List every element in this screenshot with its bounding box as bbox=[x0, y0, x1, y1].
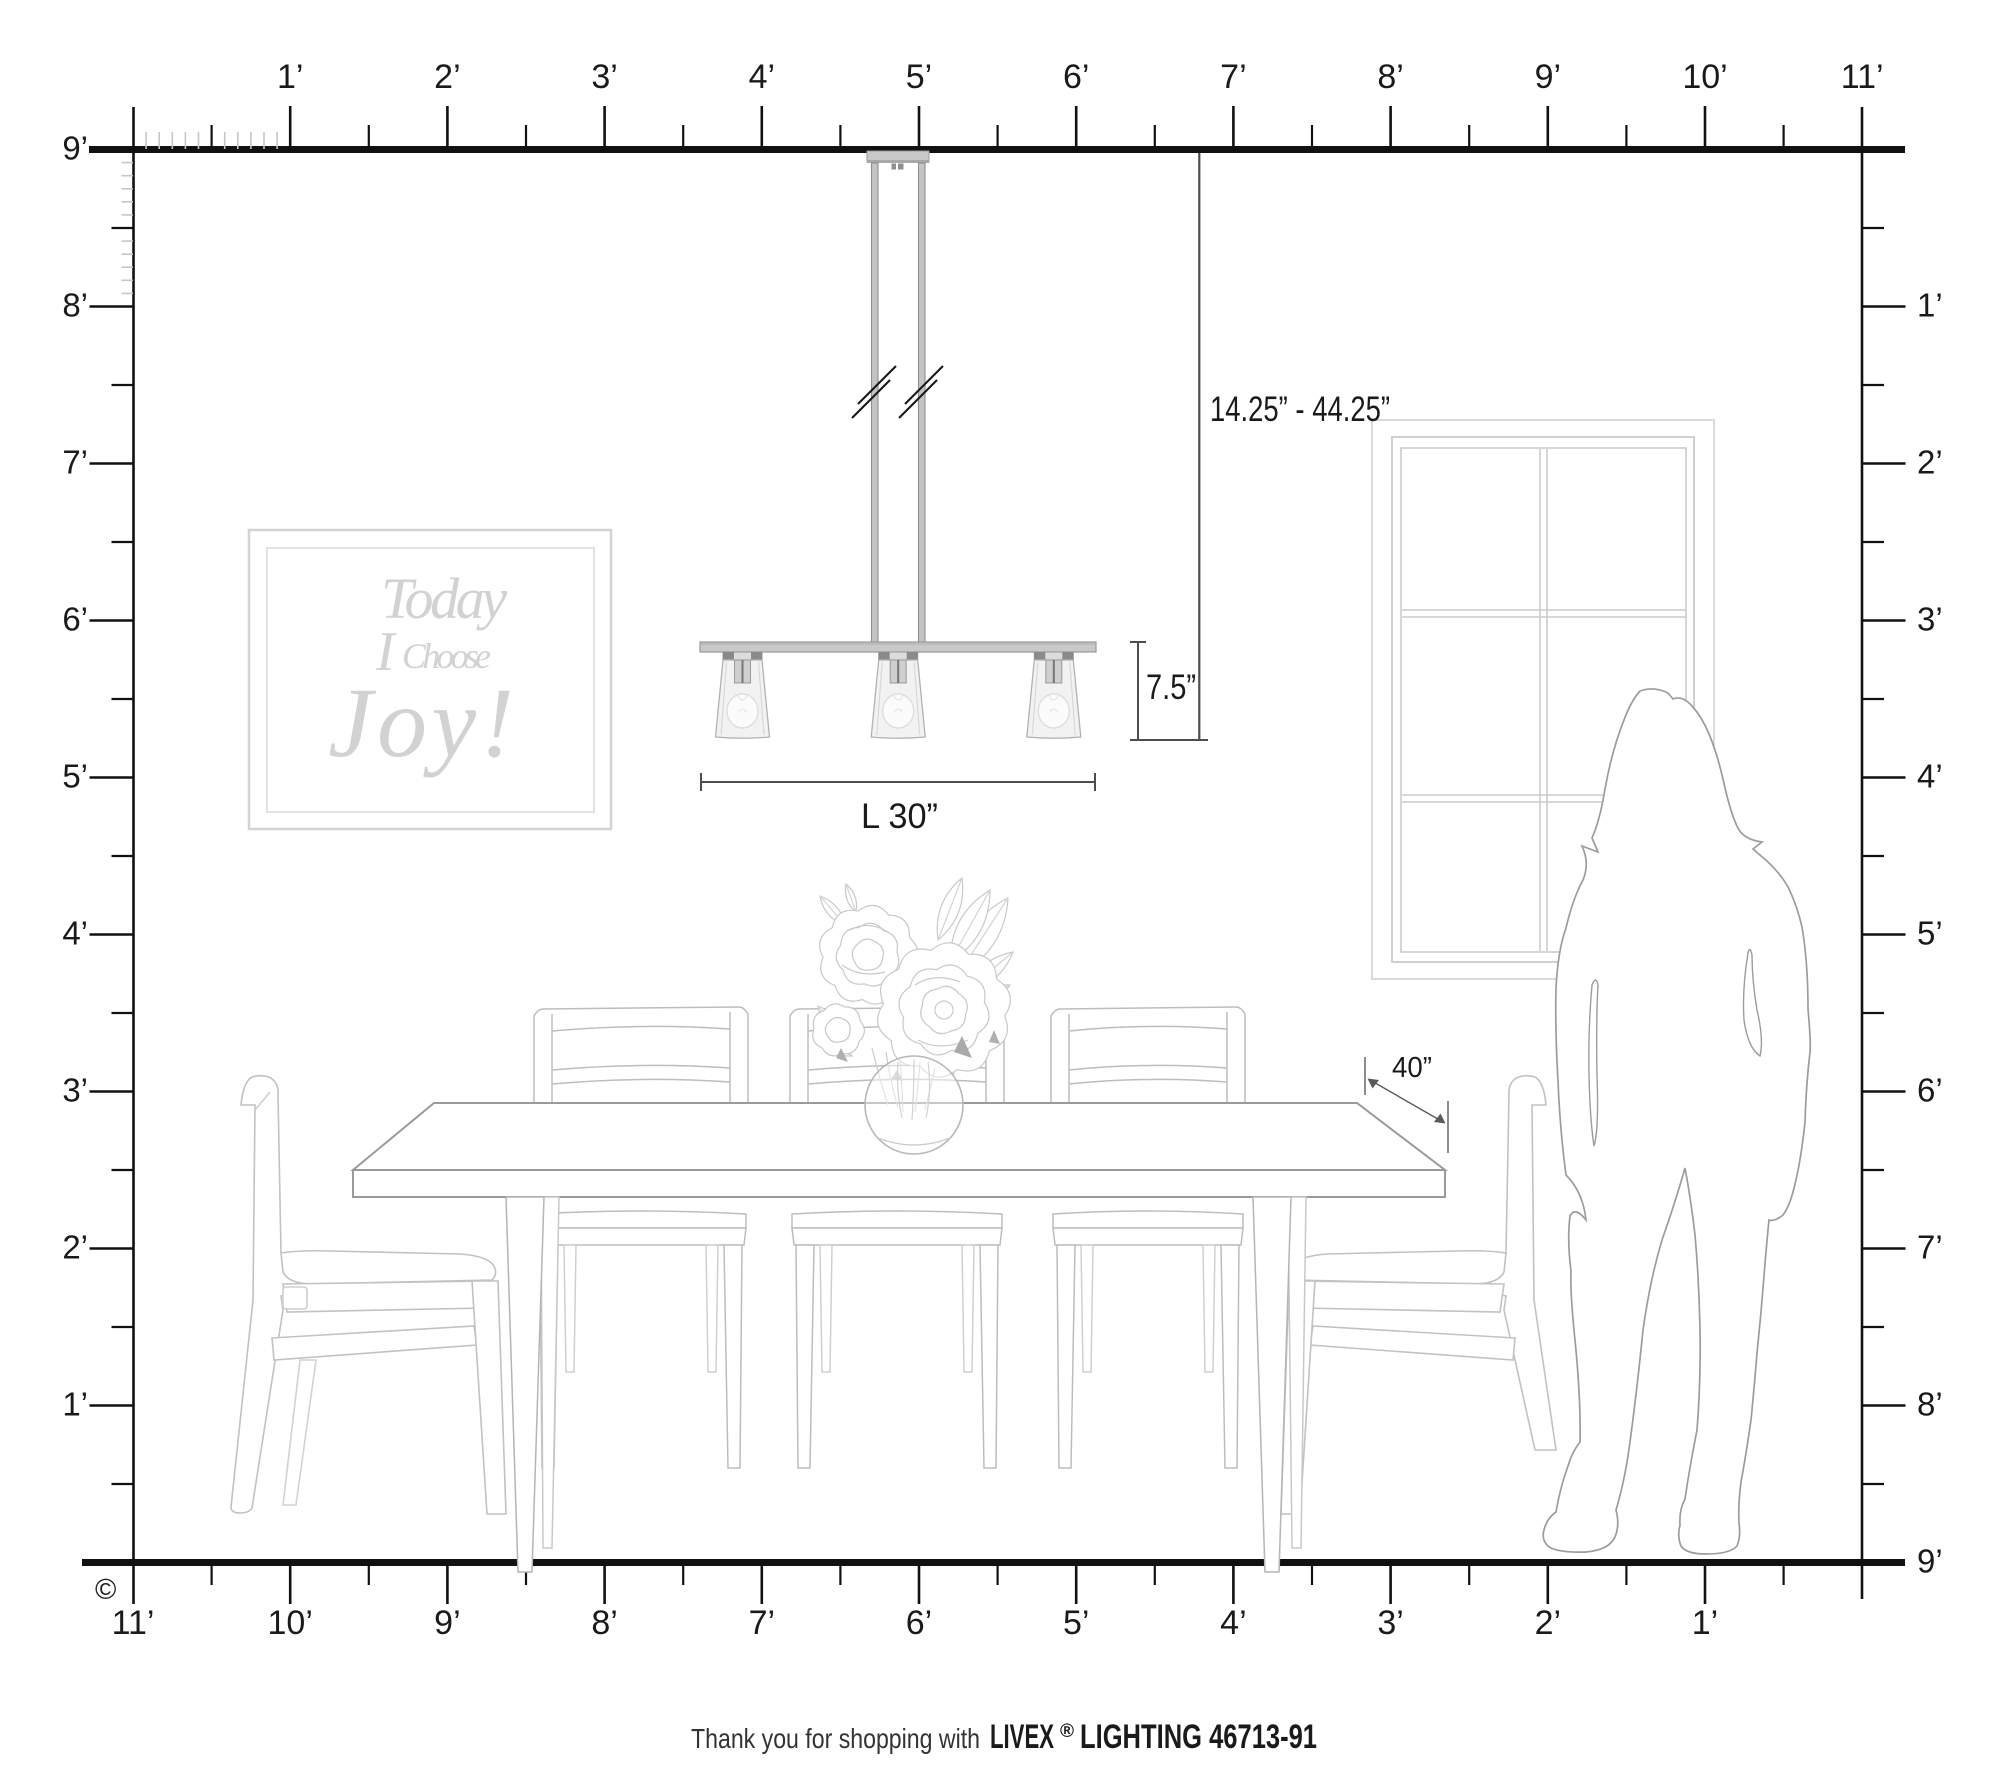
svg-text:5’: 5’ bbox=[1063, 1604, 1089, 1642]
svg-text:®: ® bbox=[1060, 1721, 1074, 1742]
svg-text:2’: 2’ bbox=[1535, 1604, 1561, 1642]
svg-text:1’: 1’ bbox=[62, 1386, 88, 1423]
svg-text:6’: 6’ bbox=[906, 1604, 932, 1642]
svg-text:11’: 11’ bbox=[112, 1604, 155, 1642]
svg-text:2’: 2’ bbox=[434, 58, 460, 96]
svg-text:4’: 4’ bbox=[1917, 758, 1943, 795]
svg-text:5’: 5’ bbox=[62, 758, 88, 795]
svg-text:7’: 7’ bbox=[749, 1604, 775, 1642]
svg-text:4’: 4’ bbox=[62, 915, 88, 952]
svg-text:11’: 11’ bbox=[1841, 58, 1884, 96]
svg-text:9’: 9’ bbox=[62, 130, 88, 167]
svg-text:1’: 1’ bbox=[1692, 1604, 1718, 1642]
svg-text:8’: 8’ bbox=[591, 1604, 617, 1642]
svg-text:©: © bbox=[95, 1574, 116, 1606]
svg-text:2’: 2’ bbox=[1917, 444, 1943, 481]
svg-text:1’: 1’ bbox=[277, 58, 303, 96]
svg-text:9’: 9’ bbox=[1535, 58, 1561, 96]
svg-text:3’: 3’ bbox=[591, 58, 617, 96]
svg-text:LIVEX: LIVEX bbox=[990, 1718, 1054, 1756]
svg-text:14.25” - 44.25”: 14.25” - 44.25” bbox=[1210, 390, 1390, 429]
svg-text:9’: 9’ bbox=[1917, 1543, 1943, 1580]
svg-text:10’: 10’ bbox=[1682, 58, 1727, 96]
svg-text:3’: 3’ bbox=[1377, 1604, 1403, 1642]
svg-text:8’: 8’ bbox=[1377, 58, 1403, 96]
svg-text:Thank you for shopping with: Thank you for shopping with bbox=[691, 1723, 980, 1754]
svg-text:8’: 8’ bbox=[1917, 1386, 1943, 1423]
svg-text:40”: 40” bbox=[1392, 1052, 1432, 1084]
svg-text:5’: 5’ bbox=[1917, 915, 1943, 952]
svg-text:Today: Today bbox=[381, 566, 507, 631]
svg-text:L 30”: L 30” bbox=[861, 797, 938, 836]
svg-text:4’: 4’ bbox=[749, 58, 775, 96]
svg-text:8’: 8’ bbox=[62, 287, 88, 324]
svg-text:1’: 1’ bbox=[1917, 287, 1943, 324]
svg-text:2’: 2’ bbox=[62, 1229, 88, 1266]
svg-text:7’: 7’ bbox=[1220, 58, 1246, 96]
svg-text:Joy!: Joy! bbox=[328, 667, 514, 778]
svg-text:4’: 4’ bbox=[1220, 1604, 1246, 1642]
svg-text:6’: 6’ bbox=[62, 601, 88, 638]
svg-text:LIGHTING 46713-91: LIGHTING 46713-91 bbox=[1080, 1718, 1317, 1756]
svg-text:5’: 5’ bbox=[906, 58, 932, 96]
svg-text:6’: 6’ bbox=[1917, 1072, 1943, 1109]
svg-text:10’: 10’ bbox=[268, 1604, 313, 1642]
svg-text:7.5”: 7.5” bbox=[1146, 668, 1196, 707]
svg-text:7’: 7’ bbox=[1917, 1229, 1943, 1266]
svg-text:6’: 6’ bbox=[1063, 58, 1089, 96]
svg-text:9’: 9’ bbox=[434, 1604, 460, 1642]
svg-text:3’: 3’ bbox=[62, 1072, 88, 1109]
svg-text:7’: 7’ bbox=[62, 444, 88, 481]
svg-text:3’: 3’ bbox=[1917, 601, 1943, 638]
